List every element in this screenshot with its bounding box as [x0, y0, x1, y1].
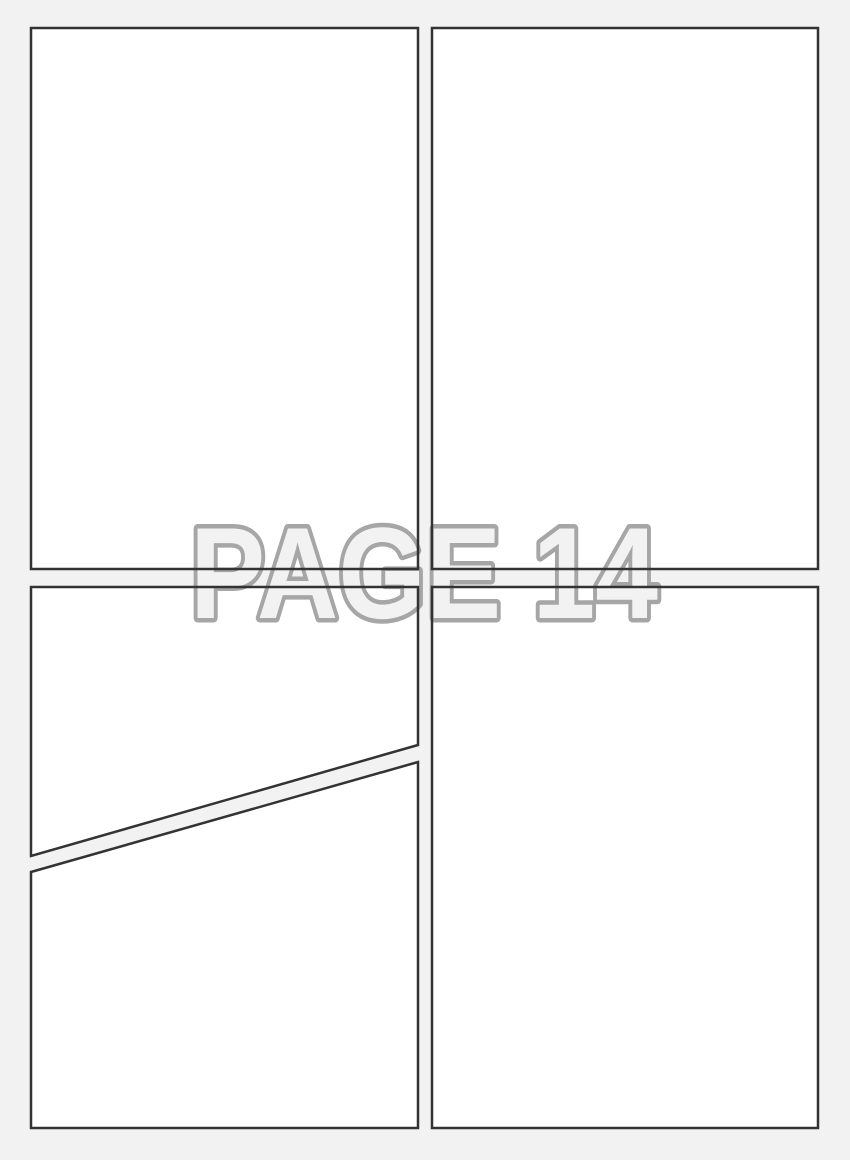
panel-top-left [31, 28, 418, 569]
panel-bottom-right [432, 587, 818, 1128]
panel-top-right [432, 28, 818, 569]
page-number-watermark: PAGE 14 [190, 500, 658, 646]
comic-page: PAGE 14 [0, 0, 850, 1160]
comic-page-canvas: PAGE 14 [0, 0, 850, 1160]
